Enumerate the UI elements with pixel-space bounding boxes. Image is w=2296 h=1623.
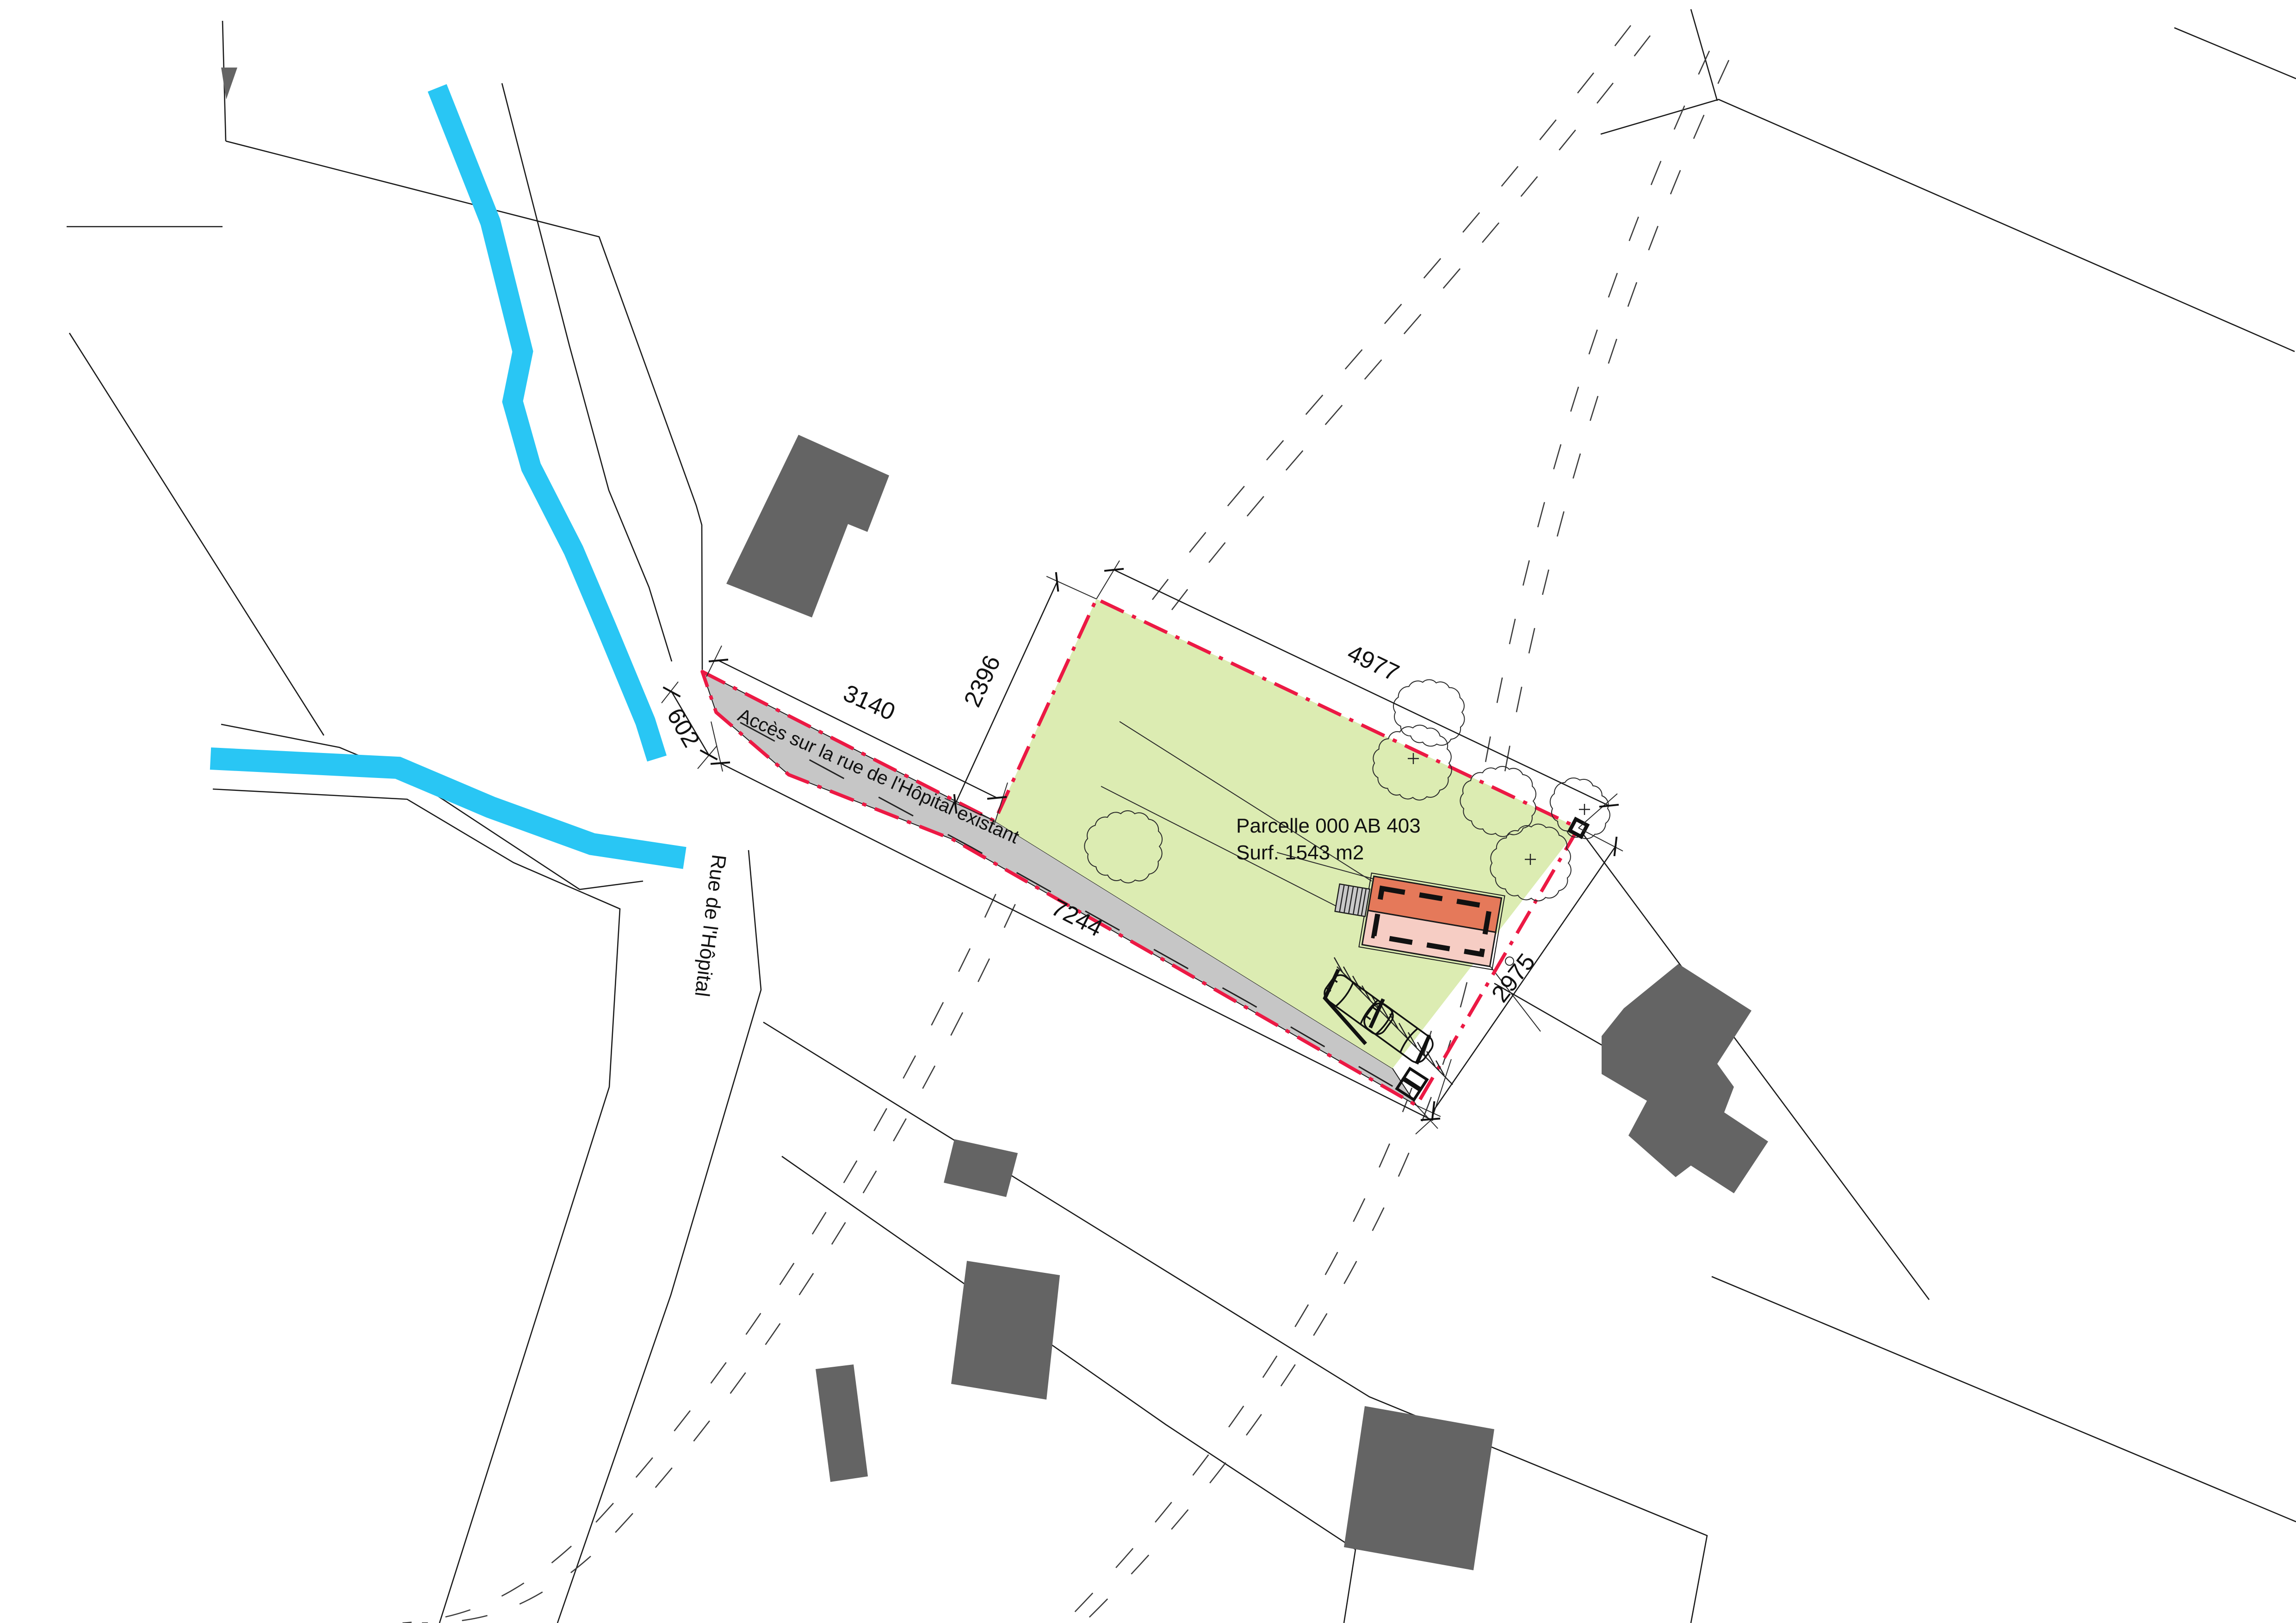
tree-icon	[1393, 679, 1464, 746]
site-plan-drawing: 3140 602 2396 4977 7244 2	[0, 0, 2296, 1623]
existing-building	[944, 1139, 1018, 1197]
parcel-label-line2: Surf. 1543 m2	[1236, 841, 1364, 864]
existing-building	[1344, 1406, 1494, 1570]
existing-building	[951, 1261, 1060, 1400]
dim-parcel-north: 4977	[1343, 640, 1403, 687]
existing-building	[1602, 964, 1768, 1193]
dim-access-width: 602	[662, 704, 705, 752]
existing-building	[816, 1364, 868, 1482]
entrance-stairs	[1335, 884, 1370, 916]
stream-lower	[210, 759, 685, 858]
stream-upper	[437, 88, 657, 759]
parcel-label-line1: Parcelle 000 AB 403	[1236, 815, 1421, 837]
street-name-label: Rue de l'Hôpital	[690, 853, 730, 998]
dim-access-length: 3140	[839, 679, 899, 726]
access-road-label: Accès sur la rue de l'Hôpital existant	[735, 704, 1022, 848]
site-plan-page: 3140 602 2396 4977 7244 2	[0, 0, 2296, 1623]
stream	[210, 88, 685, 858]
existing-building	[726, 435, 889, 617]
dim-parcel-west: 2396	[959, 651, 1006, 711]
building-edge-fragment	[221, 68, 237, 99]
